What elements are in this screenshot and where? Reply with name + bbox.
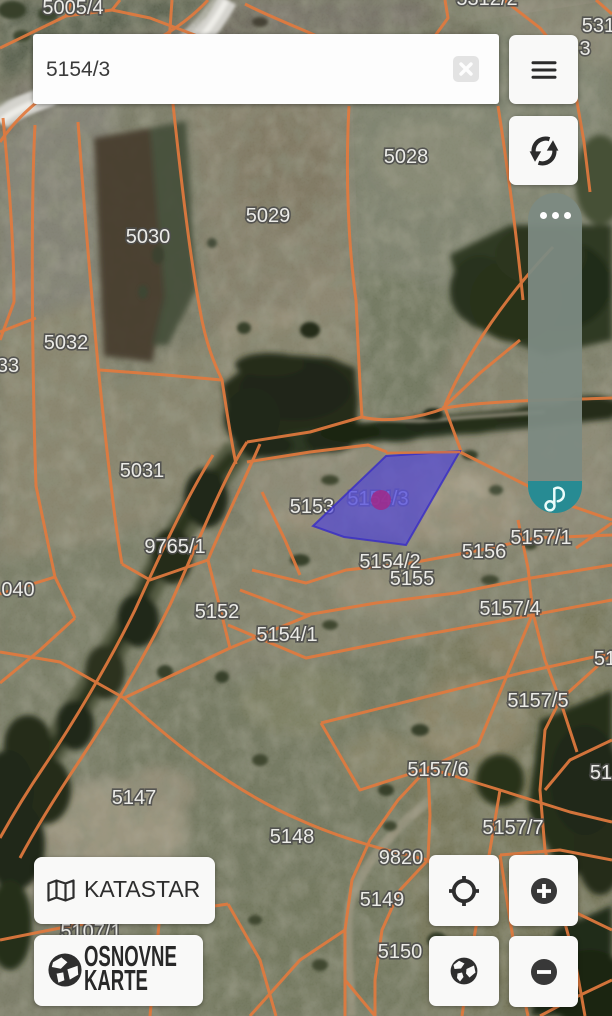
svg-text:5154/1: 5154/1 bbox=[256, 624, 317, 646]
svg-text:5149: 5149 bbox=[360, 889, 405, 911]
svg-text:5155: 5155 bbox=[390, 568, 435, 590]
svg-text:5031: 5031 bbox=[120, 460, 165, 482]
svg-text:5157/1: 5157/1 bbox=[510, 527, 571, 549]
svg-text:5152: 5152 bbox=[195, 601, 240, 623]
svg-text:3: 3 bbox=[579, 38, 590, 60]
svg-text:5156: 5156 bbox=[462, 541, 507, 563]
svg-text:5312/2: 5312/2 bbox=[456, 0, 517, 10]
svg-text:9820: 9820 bbox=[379, 847, 424, 869]
svg-text:5029: 5029 bbox=[246, 205, 291, 227]
svg-text:51: 51 bbox=[590, 762, 612, 784]
svg-text:5148: 5148 bbox=[270, 826, 315, 848]
svg-text:5314: 5314 bbox=[582, 15, 612, 37]
svg-text:5032: 5032 bbox=[44, 332, 89, 354]
svg-text:5157/4: 5157/4 bbox=[479, 598, 540, 620]
svg-text:5157/6: 5157/6 bbox=[407, 759, 468, 781]
svg-text:5030: 5030 bbox=[126, 226, 171, 248]
svg-text:040: 040 bbox=[1, 579, 34, 601]
svg-text:5157/7: 5157/7 bbox=[482, 817, 543, 839]
svg-text:5150: 5150 bbox=[378, 941, 423, 963]
svg-text:5005/4: 5005/4 bbox=[42, 0, 103, 19]
svg-text:51: 51 bbox=[594, 648, 612, 670]
svg-text:9765/1: 9765/1 bbox=[144, 536, 205, 558]
svg-text:5147: 5147 bbox=[112, 787, 157, 809]
svg-text:5157/5: 5157/5 bbox=[507, 690, 568, 712]
svg-text:5028: 5028 bbox=[384, 146, 429, 168]
svg-text:33: 33 bbox=[0, 355, 19, 377]
